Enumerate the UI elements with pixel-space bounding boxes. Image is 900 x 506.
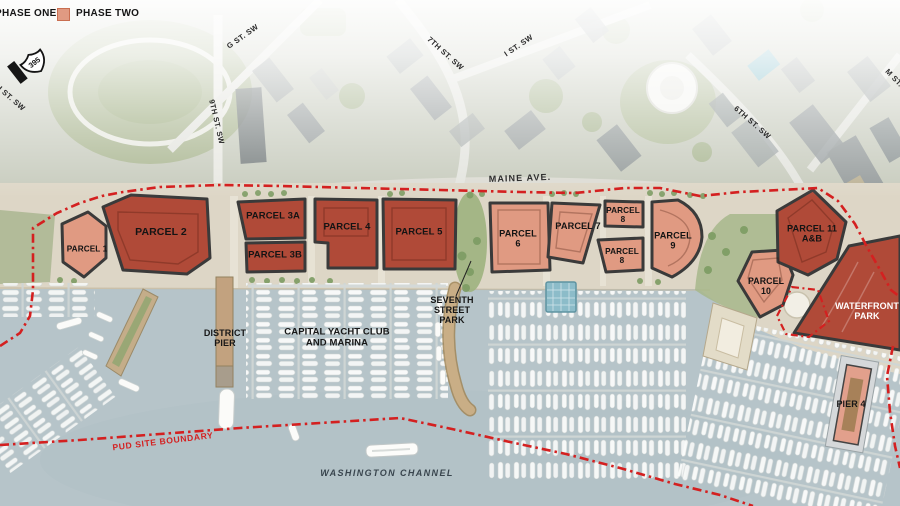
parcel-9-label: PARCEL 9 bbox=[654, 231, 692, 252]
parcel-3b-label: PARCEL 3B bbox=[248, 251, 302, 262]
map-graphic-layer: 395 bbox=[0, 0, 900, 506]
waterfront-park-label: WATERFRONT PARK bbox=[835, 301, 899, 321]
legend-phase-two-swatch bbox=[57, 8, 70, 21]
seventh-street-park-label: SEVENTH STREET PARK bbox=[430, 295, 473, 325]
parcel-2-label: PARCEL 2 bbox=[135, 227, 187, 239]
pier-4-label: PIER 4 bbox=[836, 399, 865, 409]
parcel-4-label: PARCEL 4 bbox=[324, 223, 371, 234]
capital-yacht-club-label: CAPITAL YACHT CLUB AND MARINA bbox=[284, 327, 389, 348]
parcel-8-upper-label: PARCEL 8 bbox=[606, 206, 640, 224]
parcel-8-lower-label: PARCEL 8 bbox=[605, 247, 639, 265]
legend-phase-one-label: PHASE ONE bbox=[0, 8, 57, 19]
parcel-3a-label: PARCEL 3A bbox=[246, 212, 300, 223]
parcel-11-label: PARCEL 11 A&B bbox=[787, 224, 837, 245]
washington-channel-label: WASHINGTON CHANNEL bbox=[320, 468, 454, 478]
legend-phase-two-label: PHASE TWO bbox=[76, 8, 139, 19]
parcel-7-label: PARCEL 7 bbox=[555, 221, 600, 231]
wharf-site-map: 395 PHASE ONE PHASE TWO H ST. SW G ST. S… bbox=[0, 0, 900, 506]
parcel-10-label: PARCEL 10 bbox=[748, 277, 784, 297]
parcel-1-label: PARCEL 1 bbox=[67, 244, 108, 253]
district-pier-label: DISTRICT PIER bbox=[204, 328, 246, 348]
parcel-6-label: PARCEL 6 bbox=[499, 229, 537, 250]
photo-fade-overlay bbox=[0, 0, 900, 198]
parcel-5-label: PARCEL 5 bbox=[396, 228, 443, 239]
